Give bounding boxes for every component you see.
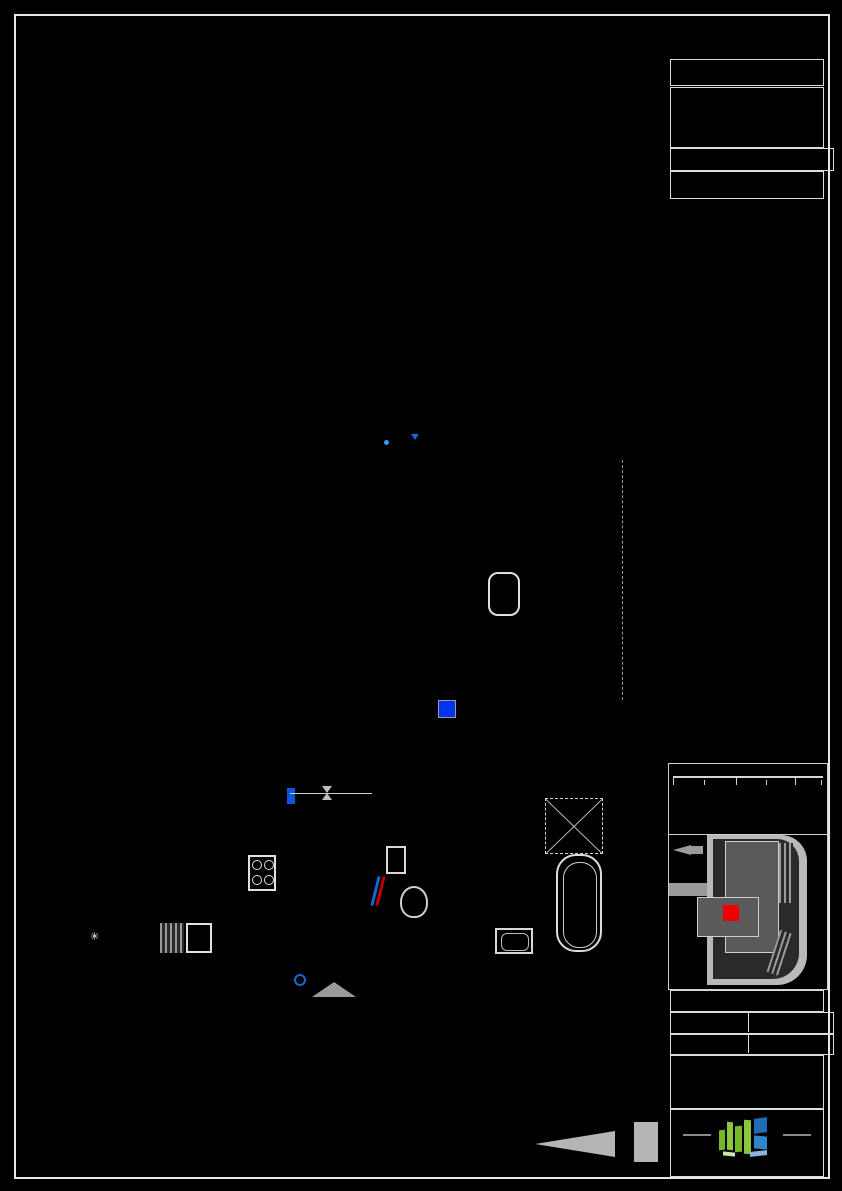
washbasin-wc bbox=[386, 846, 406, 874]
site-unit-marker bbox=[723, 905, 739, 921]
burner bbox=[252, 875, 262, 885]
objekt-row bbox=[670, 148, 834, 171]
shower-optional bbox=[545, 798, 603, 854]
geschoss-row bbox=[670, 1012, 834, 1034]
scale-tickmark bbox=[673, 776, 674, 785]
project-name-box bbox=[670, 87, 824, 148]
entrance-arrow bbox=[312, 982, 356, 997]
logo-bar bbox=[744, 1120, 751, 1155]
row-divider bbox=[748, 1012, 749, 1032]
scale-tickmark bbox=[795, 776, 796, 785]
north-arrow-block bbox=[634, 1122, 658, 1162]
logo-strip bbox=[723, 1151, 735, 1156]
radiator bbox=[160, 923, 184, 953]
logo-flag-top bbox=[754, 1117, 767, 1134]
scale-tickmark bbox=[704, 780, 705, 785]
burner bbox=[264, 860, 274, 870]
north-arrow bbox=[535, 1131, 615, 1157]
cooktop bbox=[248, 855, 276, 891]
scale-bar bbox=[673, 776, 823, 778]
logo-icon bbox=[717, 1118, 777, 1154]
bathtub-inner bbox=[563, 862, 597, 948]
unterschrift-box bbox=[670, 1055, 824, 1109]
marker-triangle-blue bbox=[411, 434, 419, 440]
scale-tickmark bbox=[736, 776, 737, 785]
washbasin-bath bbox=[495, 928, 533, 954]
burner bbox=[264, 875, 274, 885]
logo-rule-left bbox=[683, 1134, 711, 1136]
overhang-line bbox=[622, 460, 623, 700]
scale-tickmark bbox=[821, 780, 822, 785]
site-arrow bbox=[673, 845, 691, 855]
desk-chair bbox=[488, 572, 520, 616]
site-road bbox=[669, 883, 711, 896]
floor-transition-marker bbox=[322, 793, 332, 800]
logo-flag-bottom bbox=[754, 1135, 767, 1149]
logo-box bbox=[670, 1109, 824, 1177]
scale-box bbox=[668, 763, 828, 835]
toilet bbox=[400, 886, 428, 918]
projekt-header bbox=[670, 59, 824, 86]
row-divider bbox=[748, 1034, 749, 1053]
plan-type-box bbox=[670, 990, 824, 1012]
door-symbol-blue bbox=[287, 788, 295, 804]
top-number-box bbox=[670, 171, 824, 199]
logo-bar bbox=[735, 1126, 742, 1153]
burner bbox=[252, 860, 262, 870]
datum-row bbox=[670, 1034, 834, 1055]
site-parking-strip bbox=[779, 843, 793, 903]
electrical-panel bbox=[438, 700, 456, 718]
site-map bbox=[668, 834, 828, 990]
logo-rule-right bbox=[783, 1134, 811, 1136]
scale-tickmark bbox=[766, 780, 767, 785]
site-arrow-box bbox=[691, 846, 703, 854]
oven bbox=[186, 923, 212, 953]
logo-bar bbox=[727, 1122, 733, 1151]
logo-strip bbox=[750, 1150, 767, 1157]
marker-dot-blue bbox=[384, 440, 389, 445]
bathtub bbox=[556, 854, 602, 952]
doorbell-icon bbox=[294, 974, 306, 986]
floor-plan-page: ✳ bbox=[0, 0, 842, 1191]
washbasin-bowl bbox=[501, 933, 529, 951]
floor-transition-marker bbox=[322, 786, 332, 793]
freezer-snowflake-icon: ✳ bbox=[90, 930, 99, 943]
logo-bar bbox=[719, 1130, 725, 1151]
